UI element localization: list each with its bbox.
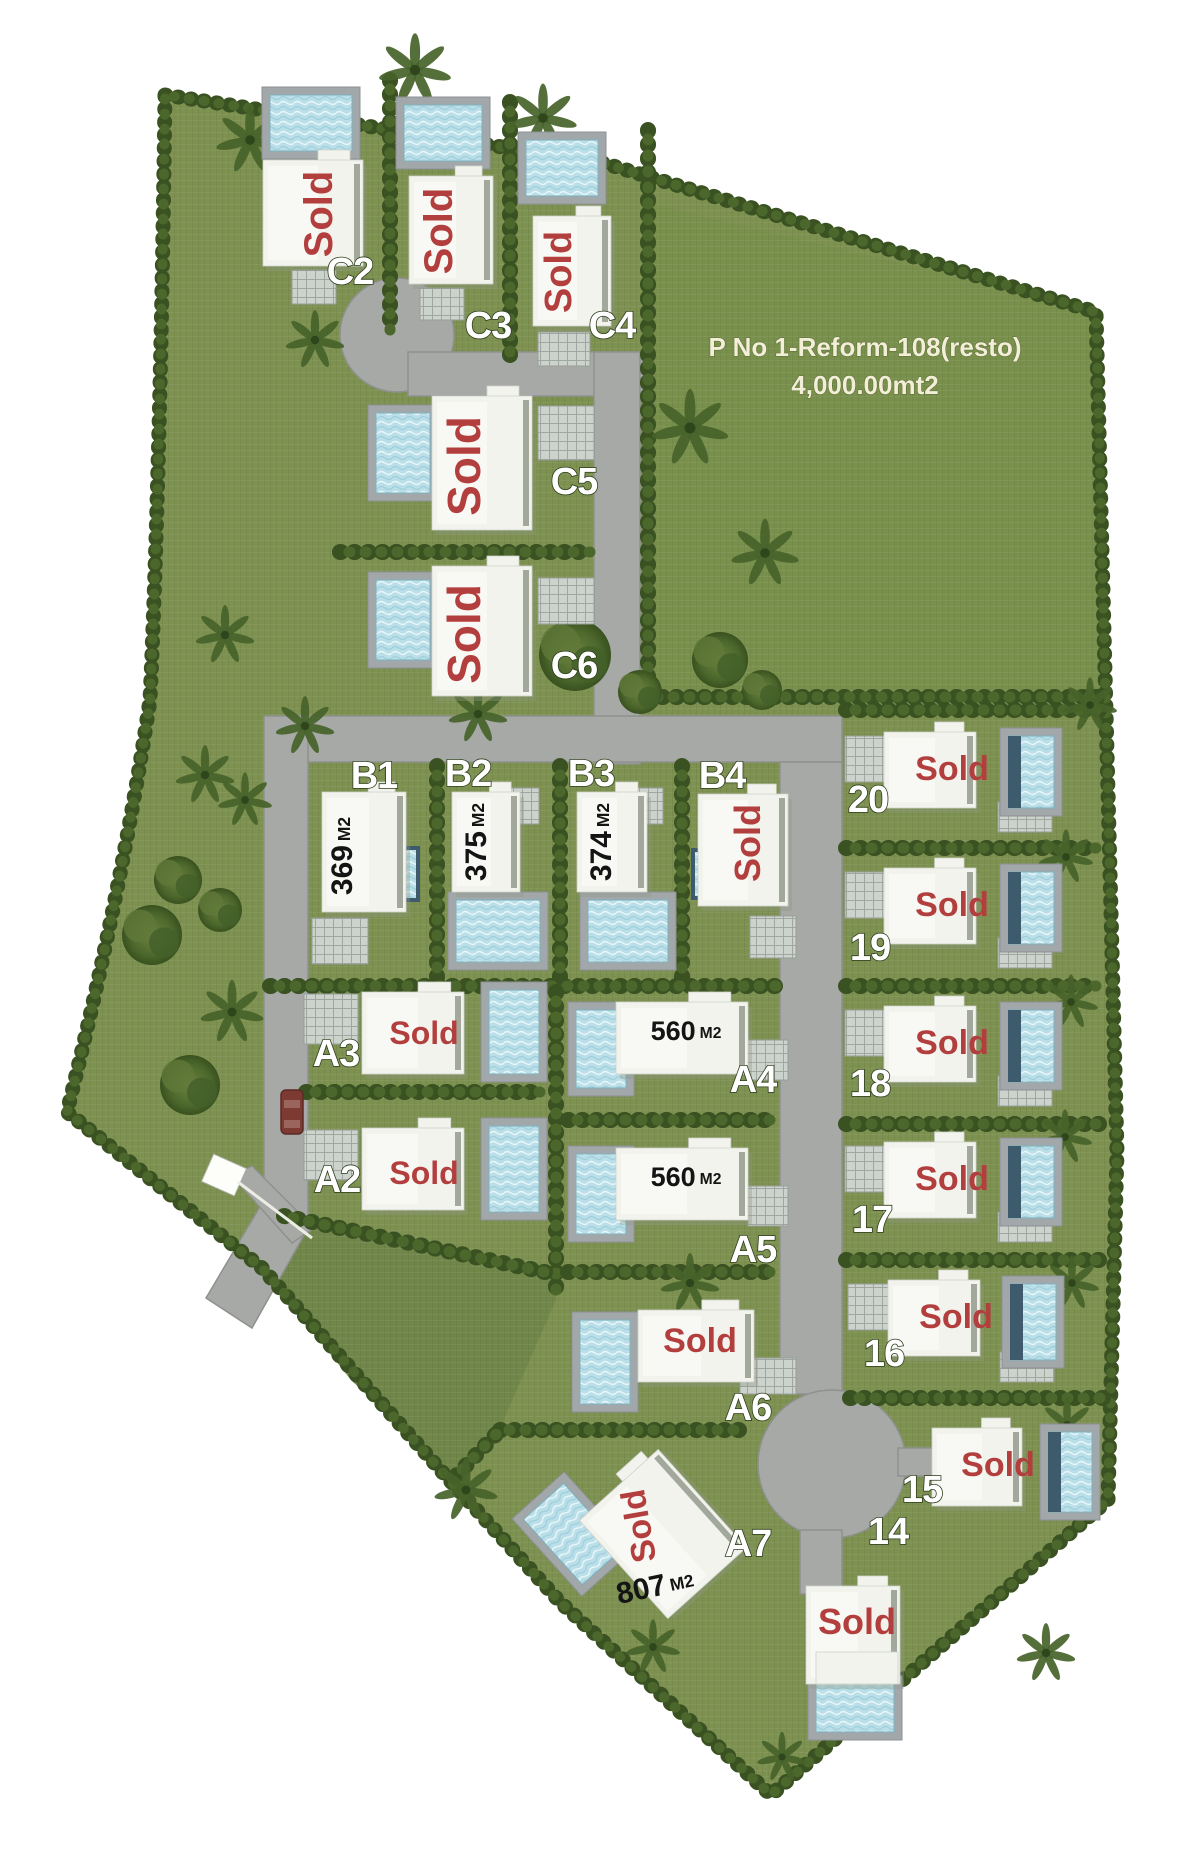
plot-label-A3: A3 [313, 1033, 360, 1075]
swimming-pool [580, 892, 676, 970]
swimming-pool [448, 892, 548, 970]
villa-annex [816, 1652, 898, 1684]
plot-label-B1: B1 [351, 755, 398, 797]
sold-badge-16: Sold [919, 1298, 993, 1336]
sold-badge-C5: Sold [438, 416, 490, 516]
road-vertical-west [264, 716, 308, 1228]
paved-terrace [748, 1186, 788, 1226]
driveway-plot-14 [800, 1530, 842, 1594]
sold-badge-C6: Sold [438, 584, 490, 684]
site-plan-svg: SoldC2SoldC3SoldC4SoldC5SoldC6369M2B1375… [0, 0, 1200, 1856]
plot-label-B2: B2 [445, 753, 492, 795]
field-title-line2: 4,000.00mt2 [791, 370, 938, 400]
sold-badge-15: Sold [961, 1446, 1035, 1484]
swimming-pool [1040, 1424, 1100, 1520]
swimming-pool [1002, 1276, 1064, 1368]
swimming-pool [518, 132, 606, 204]
sold-badge-14: Sold [818, 1601, 896, 1642]
plot-label-16: 16 [864, 1333, 904, 1375]
plot-label-A6: A6 [725, 1387, 772, 1429]
plot-label-C2: C2 [327, 251, 374, 293]
swimming-pool [1000, 1138, 1062, 1226]
bush-icon [154, 856, 202, 904]
plot-label-C5: C5 [551, 461, 598, 503]
bush-icon [160, 1055, 220, 1115]
bush-icon [198, 888, 242, 932]
swimming-pool [262, 87, 360, 159]
plot-label-19: 19 [850, 927, 890, 969]
plot-label-14: 14 [868, 1511, 909, 1553]
sold-badge-A3: Sold [389, 1015, 458, 1051]
swimming-pool [396, 97, 490, 169]
sold-badge-C2: Sold [297, 171, 341, 258]
swimming-pool [368, 572, 438, 668]
bush-icon [122, 905, 182, 965]
sold-badge-A2: Sold [389, 1155, 458, 1191]
bush-icon [742, 670, 782, 710]
plot-label-A4: A4 [730, 1059, 777, 1101]
sold-badge-B4: Sold [727, 804, 768, 882]
plot-label-17: 17 [852, 1199, 892, 1241]
plot-label-C3: C3 [465, 305, 512, 347]
sold-badge-19: Sold [915, 886, 989, 924]
paved-terrace [538, 332, 590, 366]
bush-icon [692, 632, 748, 688]
sold-badge-C3: Sold [417, 188, 461, 275]
field-title-line1: P No 1-Reform-108(resto) [708, 332, 1021, 362]
paved-terrace [538, 578, 594, 624]
sold-badge-A6: Sold [663, 1322, 737, 1360]
plot-label-C4: C4 [589, 305, 636, 347]
plot-label-18: 18 [850, 1063, 890, 1105]
sold-badge-C4: Sold [538, 231, 580, 313]
plot-label-B3: B3 [568, 753, 615, 795]
plot-label-B4: B4 [699, 755, 746, 797]
site-plan-canvas: SoldC2SoldC3SoldC4SoldC5SoldC6369M2B1375… [0, 0, 1200, 1856]
swimming-pool [481, 982, 547, 1082]
plot-label-A2: A2 [314, 1159, 361, 1201]
palm-tree-icon [1016, 1623, 1076, 1682]
plot-A3: SoldA3 [304, 982, 547, 1082]
paved-terrace [538, 406, 594, 460]
plot-label-20: 20 [848, 779, 888, 821]
swimming-pool [368, 405, 438, 501]
swimming-pool [481, 1118, 547, 1220]
car-icon [281, 1090, 303, 1134]
swimming-pool [1000, 1002, 1062, 1090]
swimming-pool [1000, 864, 1062, 952]
plot-label-15: 15 [902, 1469, 943, 1511]
sold-badge-20: Sold [915, 750, 989, 788]
bush-icon [618, 670, 662, 714]
plot-label-C6: C6 [551, 645, 598, 687]
sold-badge-17: Sold [915, 1160, 989, 1198]
paved-terrace [420, 288, 464, 320]
paved-terrace [750, 916, 796, 958]
paved-terrace [312, 918, 368, 964]
plot-label-A7: A7 [725, 1523, 772, 1565]
sold-badge-18: Sold [915, 1024, 989, 1062]
swimming-pool [572, 1312, 638, 1412]
swimming-pool [1000, 728, 1062, 816]
plot-label-A5: A5 [730, 1229, 777, 1271]
